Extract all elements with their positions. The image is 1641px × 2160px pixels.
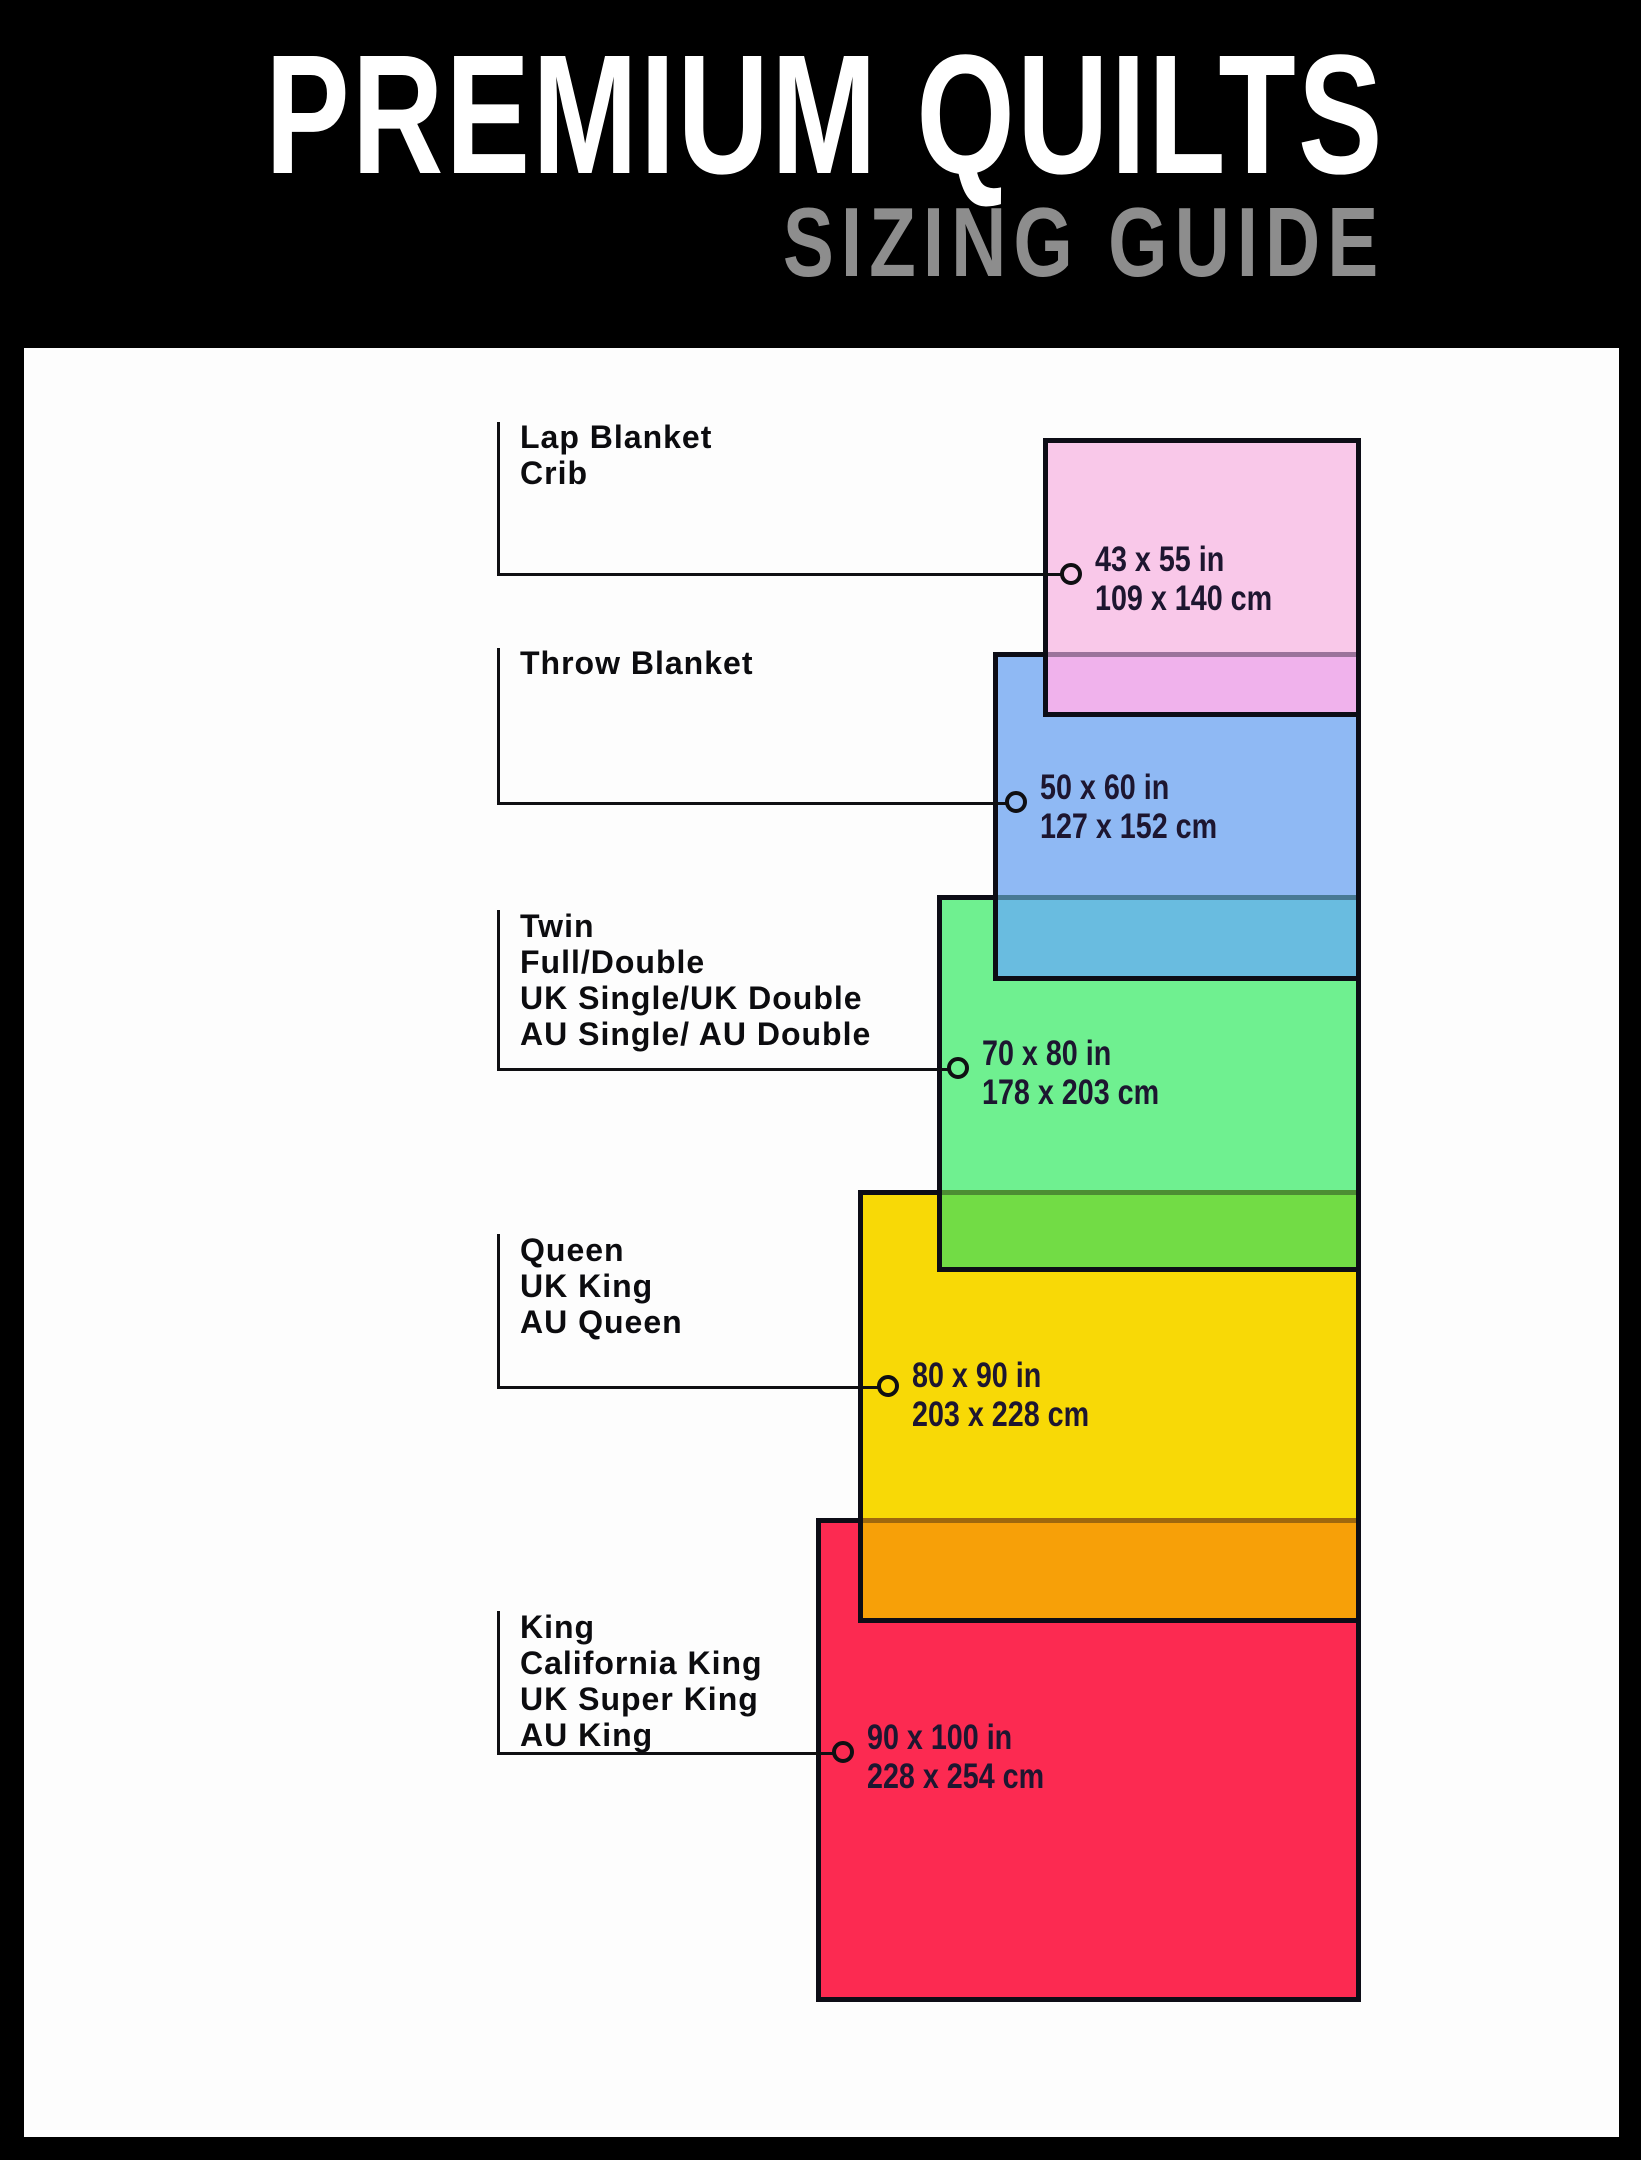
header: PREMIUM QUILTS [0, 30, 1385, 200]
page-subtitle: SIZING GUIDE [783, 193, 1385, 291]
label-line: UK Single/UK Double [520, 980, 871, 1016]
label-line: Lap Blanket [520, 419, 712, 455]
king-label: King California King UK Super King AU Ki… [520, 1609, 763, 1753]
lap-dimension-cm: 109 x 140 cm [1095, 579, 1272, 618]
lap-connector-hline [497, 573, 1062, 576]
label-line: UK Super King [520, 1681, 763, 1717]
label-line: UK King [520, 1268, 683, 1304]
twin-dimensions: 70 x 80 in 178 x 203 cm [982, 1034, 1159, 1112]
throw-connector-vline [497, 648, 500, 805]
twin-connector-vline [497, 910, 500, 1071]
throw-dimension-in: 50 x 60 in [1040, 768, 1217, 807]
label-line: Full/Double [520, 944, 871, 980]
label-line: King [520, 1609, 763, 1645]
lap-label: Lap Blanket Crib [520, 419, 712, 491]
twin-dimension-in: 70 x 80 in [982, 1034, 1159, 1073]
label-line: Twin [520, 908, 871, 944]
twin-label: Twin Full/Double UK Single/UK Double AU … [520, 908, 871, 1052]
queen-connector-vline [497, 1234, 500, 1389]
queen-connector-hline [497, 1386, 879, 1389]
label-line: AU Queen [520, 1304, 683, 1340]
label-line: California King [520, 1645, 763, 1681]
twin-connector-hline [497, 1068, 950, 1071]
throw-connector-hline [497, 802, 1008, 805]
twin-marker-circle-icon [947, 1057, 969, 1079]
throw-label: Throw Blanket [520, 645, 753, 681]
queen-marker-circle-icon [877, 1375, 899, 1397]
lap-dimension-in: 43 x 55 in [1095, 540, 1272, 579]
king-connector-vline [497, 1611, 500, 1755]
queen-dimension-in: 80 x 90 in [912, 1356, 1089, 1395]
king-dimensions: 90 x 100 in 228 x 254 cm [867, 1718, 1044, 1796]
throw-marker-circle-icon [1005, 791, 1027, 813]
throw-dimension-cm: 127 x 152 cm [1040, 807, 1217, 846]
throw-dimensions: 50 x 60 in 127 x 152 cm [1040, 768, 1217, 846]
label-line: AU King [520, 1717, 763, 1753]
label-line: Throw Blanket [520, 645, 753, 681]
lap-dimensions: 43 x 55 in 109 x 140 cm [1095, 540, 1272, 618]
label-line: Crib [520, 455, 712, 491]
infographic-canvas: PREMIUM QUILTS SIZING GUIDE Lap Blanket [0, 0, 1641, 2160]
label-line: AU Single/ AU Double [520, 1016, 871, 1052]
king-marker-circle-icon [832, 1741, 854, 1763]
twin-dimension-cm: 178 x 203 cm [982, 1073, 1159, 1112]
king-dimension-in: 90 x 100 in [867, 1718, 1044, 1757]
king-dimension-cm: 228 x 254 cm [867, 1757, 1044, 1796]
lap-marker-circle-icon [1060, 563, 1082, 585]
label-line: Queen [520, 1232, 683, 1268]
lap-connector-vline [497, 422, 500, 576]
queen-dimension-cm: 203 x 228 cm [912, 1395, 1089, 1434]
queen-label: Queen UK King AU Queen [520, 1232, 683, 1340]
page-title: PREMIUM QUILTS [265, 30, 1385, 200]
queen-dimensions: 80 x 90 in 203 x 228 cm [912, 1356, 1089, 1434]
